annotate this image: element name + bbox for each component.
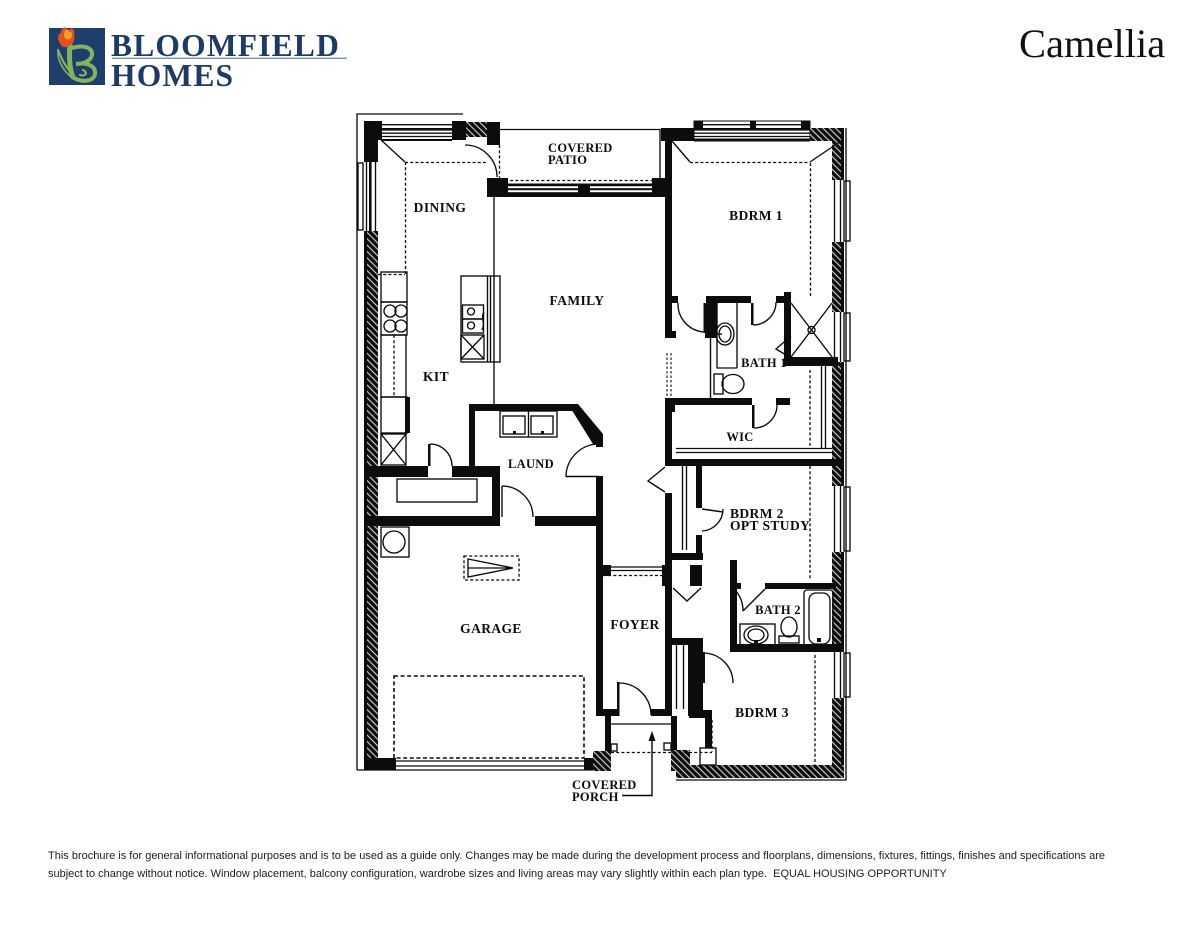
svg-text:KIT: KIT xyxy=(423,369,449,384)
svg-text:BDRM 3: BDRM 3 xyxy=(735,705,789,720)
svg-text:WIC: WIC xyxy=(726,430,753,444)
svg-text:BDRM 1: BDRM 1 xyxy=(729,208,783,223)
svg-text:BATH 1: BATH 1 xyxy=(741,356,787,370)
svg-text:BATH 2: BATH 2 xyxy=(755,603,801,617)
svg-text:PATIO: PATIO xyxy=(548,153,587,167)
svg-text:FAMILY: FAMILY xyxy=(550,293,605,308)
svg-text:OPT STUDY: OPT STUDY xyxy=(730,518,810,533)
svg-text:LAUND: LAUND xyxy=(508,457,554,471)
svg-text:PORCH: PORCH xyxy=(572,790,619,804)
svg-text:FOYER: FOYER xyxy=(610,617,659,632)
svg-text:DINING: DINING xyxy=(414,200,467,215)
svg-text:GARAGE: GARAGE xyxy=(460,621,522,636)
